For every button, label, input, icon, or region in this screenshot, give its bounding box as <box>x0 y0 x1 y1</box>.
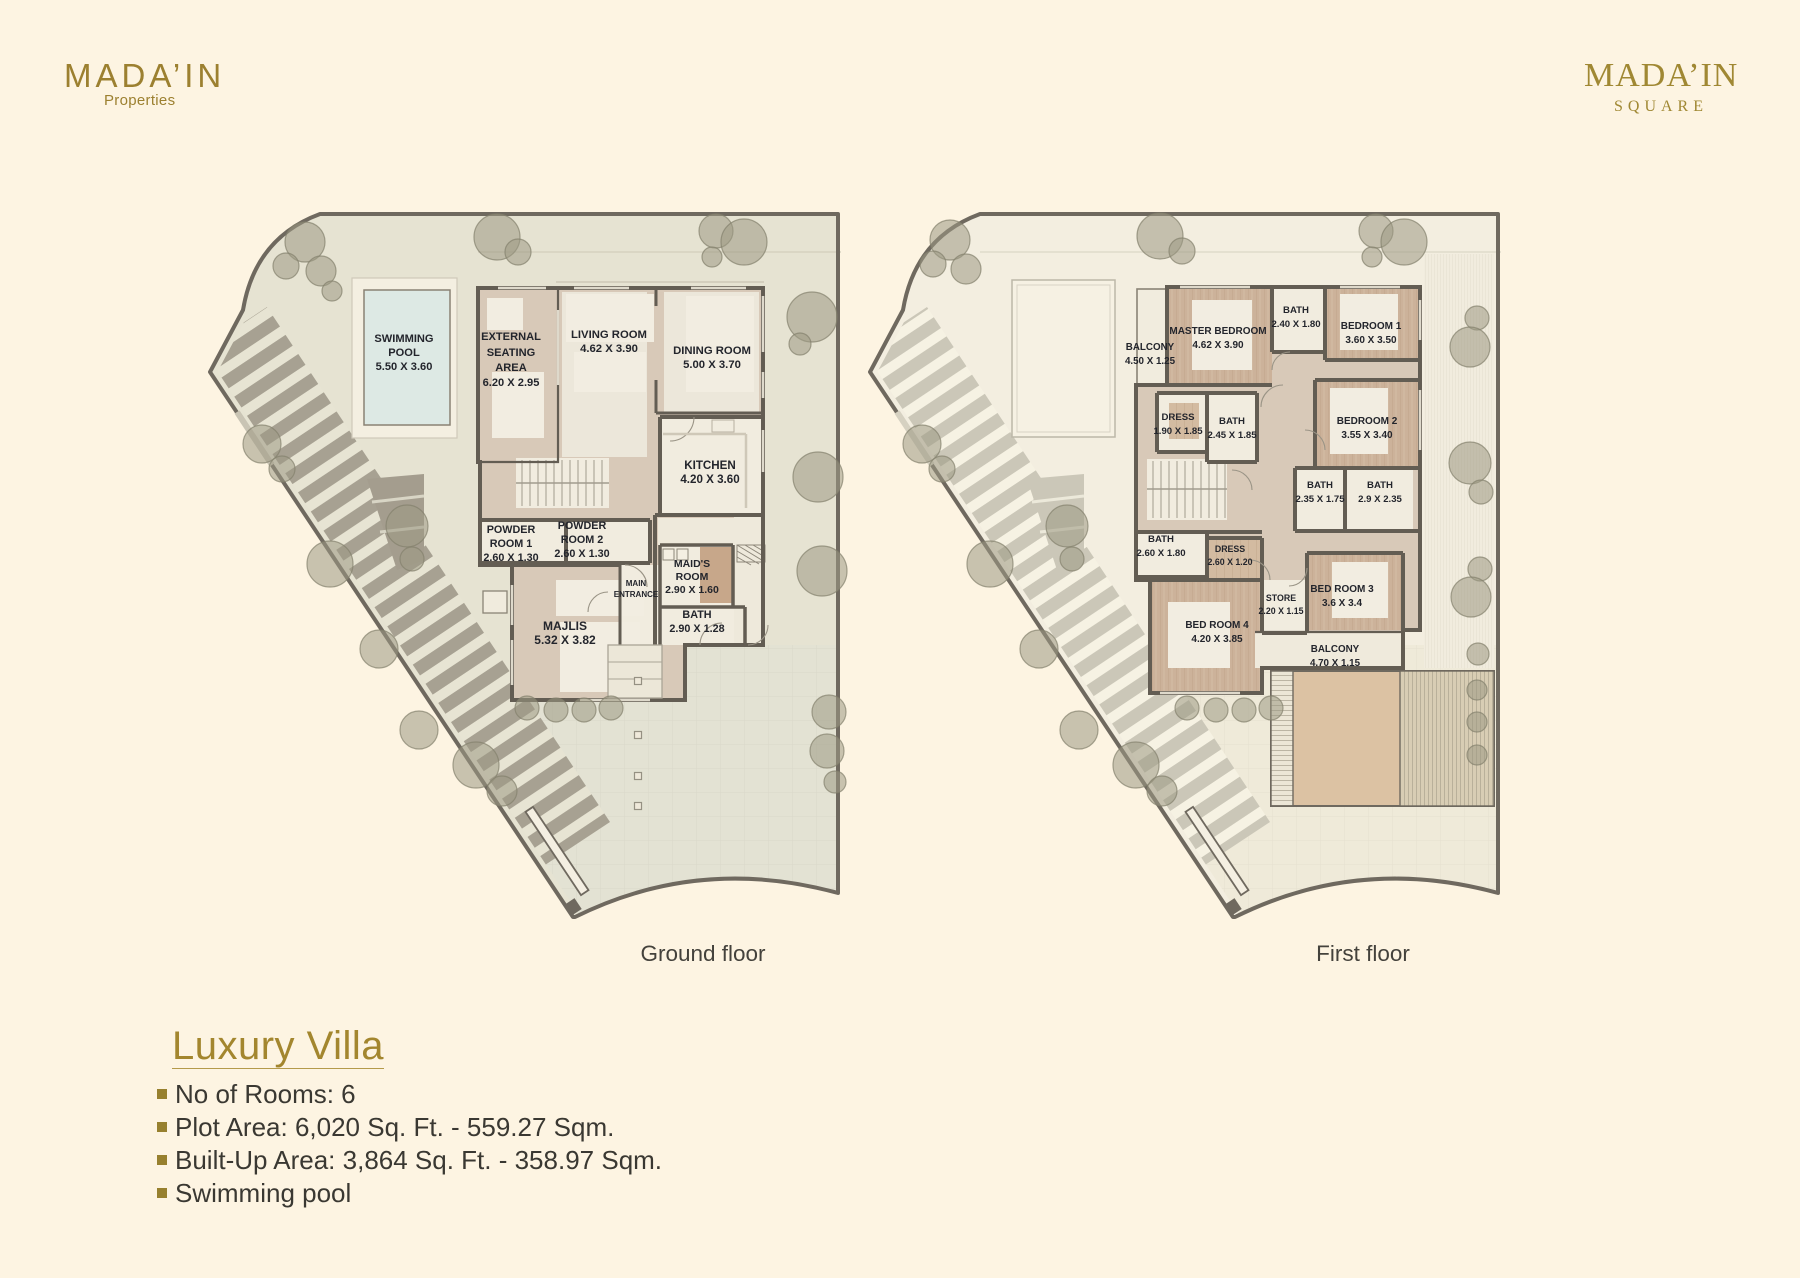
svg-text:2.60 X 1.30: 2.60 X 1.30 <box>483 552 538 564</box>
svg-text:4.62 X 3.90: 4.62 X 3.90 <box>580 343 638 355</box>
svg-text:MAJLIS: MAJLIS <box>543 619 587 633</box>
svg-text:2.45 X 1.85: 2.45 X 1.85 <box>1207 430 1257 441</box>
svg-text:MASTER BEDROOM: MASTER BEDROOM <box>1169 326 1266 337</box>
svg-text:3.55 X 3.40: 3.55 X 3.40 <box>1341 430 1393 441</box>
svg-text:KITCHEN: KITCHEN <box>684 459 736 472</box>
svg-text:1.90 X 1.85: 1.90 X 1.85 <box>1153 426 1203 437</box>
svg-text:BED ROOM 3: BED ROOM 3 <box>1310 584 1374 595</box>
svg-text:DRESS: DRESS <box>1215 544 1245 554</box>
svg-text:2.60 X 1.80: 2.60 X 1.80 <box>1136 548 1185 559</box>
svg-text:LIVING ROOM: LIVING ROOM <box>571 329 647 341</box>
svg-text:DINING ROOM: DINING ROOM <box>673 345 751 357</box>
svg-text:STORE: STORE <box>1266 593 1296 603</box>
svg-text:2.90 X 1.60: 2.90 X 1.60 <box>665 584 719 596</box>
svg-text:BATH: BATH <box>1367 480 1393 491</box>
svg-text:4.70 X 1.15: 4.70 X 1.15 <box>1310 658 1361 669</box>
svg-text:ROOM 2: ROOM 2 <box>561 534 604 546</box>
svg-text:SEATING: SEATING <box>487 347 536 359</box>
svg-text:6.20 X 2.95: 6.20 X 2.95 <box>483 377 540 389</box>
svg-text:POOL: POOL <box>388 347 420 359</box>
svg-text:ENTRANCE: ENTRANCE <box>614 590 659 599</box>
svg-text:BATH: BATH <box>1148 534 1174 545</box>
svg-text:BATH: BATH <box>1307 480 1333 491</box>
svg-text:2.9 X 2.35: 2.9 X 2.35 <box>1358 494 1402 505</box>
svg-text:2.90 X 1.28: 2.90 X 1.28 <box>669 623 724 635</box>
svg-text:3.6 X 3.4: 3.6 X 3.4 <box>1322 598 1362 609</box>
svg-text:EXTERNAL: EXTERNAL <box>481 331 541 343</box>
svg-text:4.20 X 3.85: 4.20 X 3.85 <box>1191 634 1243 645</box>
svg-text:5.32 X 3.82: 5.32 X 3.82 <box>534 633 596 647</box>
svg-text:BEDROOM 1: BEDROOM 1 <box>1341 321 1402 332</box>
svg-text:3.60 X 3.50: 3.60 X 3.50 <box>1345 335 1397 346</box>
svg-text:BATH: BATH <box>1283 305 1309 316</box>
svg-text:4.20 X 3.60: 4.20 X 3.60 <box>680 473 739 486</box>
svg-text:First floor: First floor <box>1316 941 1410 966</box>
svg-text:MAIN: MAIN <box>626 579 647 588</box>
svg-text:2.60 X 1.30: 2.60 X 1.30 <box>554 548 609 560</box>
svg-text:BATH: BATH <box>682 609 711 621</box>
svg-text:SWIMMING: SWIMMING <box>374 333 433 345</box>
svg-text:Ground floor: Ground floor <box>640 941 766 966</box>
svg-text:BED ROOM 4: BED ROOM 4 <box>1185 620 1249 631</box>
svg-text:AREA: AREA <box>495 362 526 374</box>
svg-text:BALCONY: BALCONY <box>1126 342 1175 353</box>
svg-text:POWDER: POWDER <box>487 524 536 536</box>
svg-text:ROOM: ROOM <box>676 571 709 583</box>
svg-text:BEDROOM 2: BEDROOM 2 <box>1337 416 1398 427</box>
svg-text:2.60 X 1.20: 2.60 X 1.20 <box>1208 557 1253 567</box>
svg-text:2.40 X 1.80: 2.40 X 1.80 <box>1271 319 1320 330</box>
svg-text:5.00 X 3.70: 5.00 X 3.70 <box>683 359 741 371</box>
svg-text:POWDER: POWDER <box>558 520 607 532</box>
svg-text:5.50 X 3.60: 5.50 X 3.60 <box>376 361 433 373</box>
svg-text:BATH: BATH <box>1219 416 1245 427</box>
svg-text:DRESS: DRESS <box>1161 412 1195 423</box>
svg-text:BALCONY: BALCONY <box>1311 644 1360 655</box>
svg-text:ROOM 1: ROOM 1 <box>490 538 533 550</box>
svg-text:2.35 X 1.75: 2.35 X 1.75 <box>1295 494 1345 505</box>
svg-text:MAID'S: MAID'S <box>674 558 710 570</box>
svg-text:4.50 X 1.25: 4.50 X 1.25 <box>1125 356 1176 367</box>
svg-text:4.62 X 3.90: 4.62 X 3.90 <box>1192 340 1244 351</box>
svg-text:2.20 X 1.15: 2.20 X 1.15 <box>1259 606 1304 616</box>
